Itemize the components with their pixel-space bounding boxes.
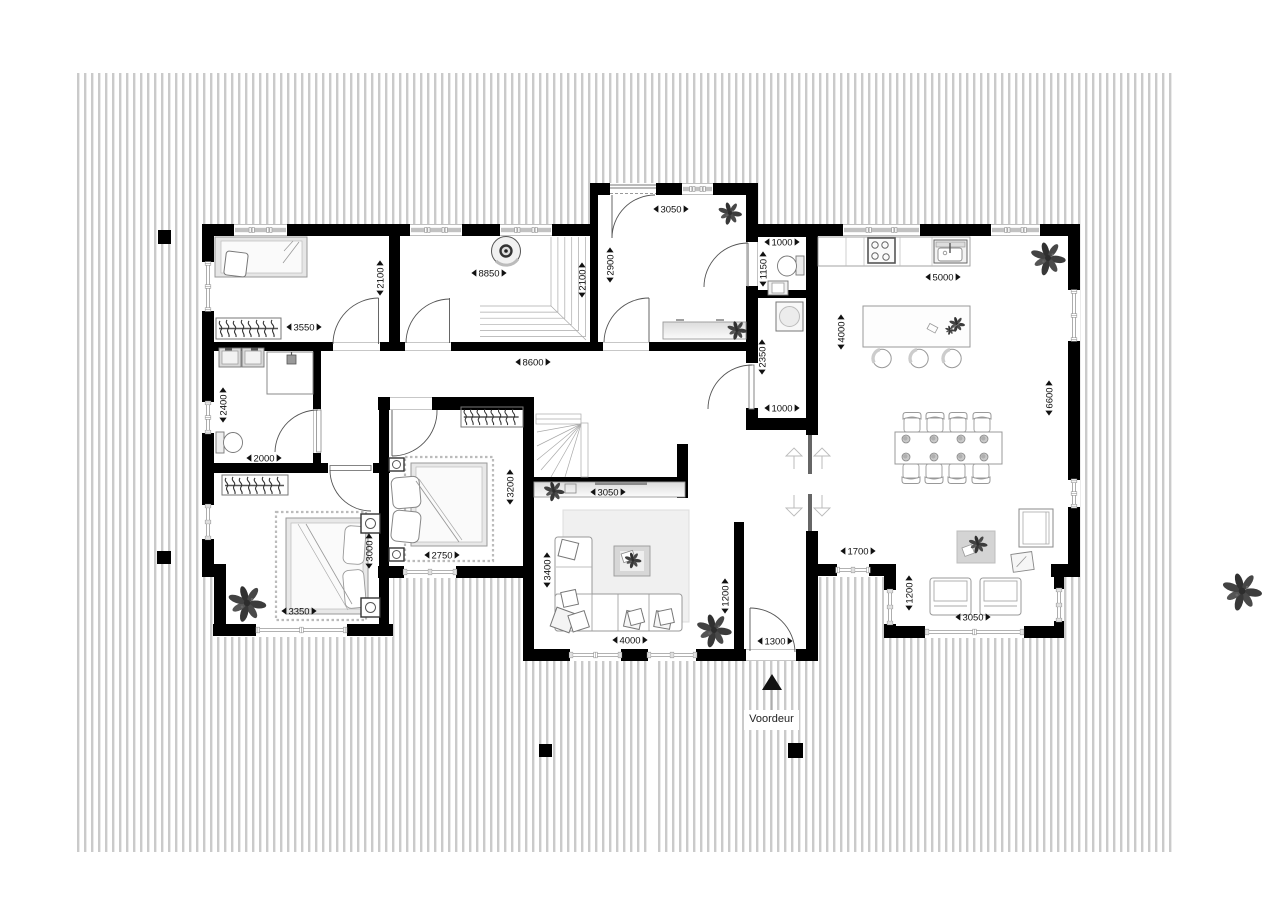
svg-text:8850: 8850 [478,268,499,279]
svg-text:6600: 6600 [1044,387,1055,408]
svg-text:4000: 4000 [619,635,640,646]
svg-text:3550: 3550 [293,322,314,333]
svg-text:1700: 1700 [847,546,868,557]
svg-text:1200: 1200 [720,585,731,606]
svg-text:3050: 3050 [597,487,618,498]
svg-text:5000: 5000 [932,272,953,283]
svg-text:2100: 2100 [577,269,588,290]
svg-text:3400: 3400 [542,559,553,580]
svg-text:2350: 2350 [757,346,768,367]
svg-text:8600: 8600 [522,357,543,368]
svg-text:2000: 2000 [253,453,274,464]
svg-text:1200: 1200 [904,582,915,603]
svg-text:2100: 2100 [375,267,386,288]
svg-text:Voordeur: Voordeur [749,713,794,725]
svg-text:1150: 1150 [758,259,769,279]
svg-text:3350: 3350 [288,606,309,617]
svg-text:1300: 1300 [764,636,785,647]
svg-text:2900: 2900 [605,254,616,275]
svg-text:4000: 4000 [836,321,847,342]
svg-text:3000: 3000 [364,540,375,561]
svg-text:2400: 2400 [218,394,229,415]
svg-text:3050: 3050 [962,612,983,623]
svg-text:3200: 3200 [505,476,516,497]
svg-text:3050: 3050 [660,204,681,215]
svg-text:1000: 1000 [771,237,792,248]
svg-text:1000: 1000 [771,403,792,414]
svg-text:2750: 2750 [431,550,452,561]
